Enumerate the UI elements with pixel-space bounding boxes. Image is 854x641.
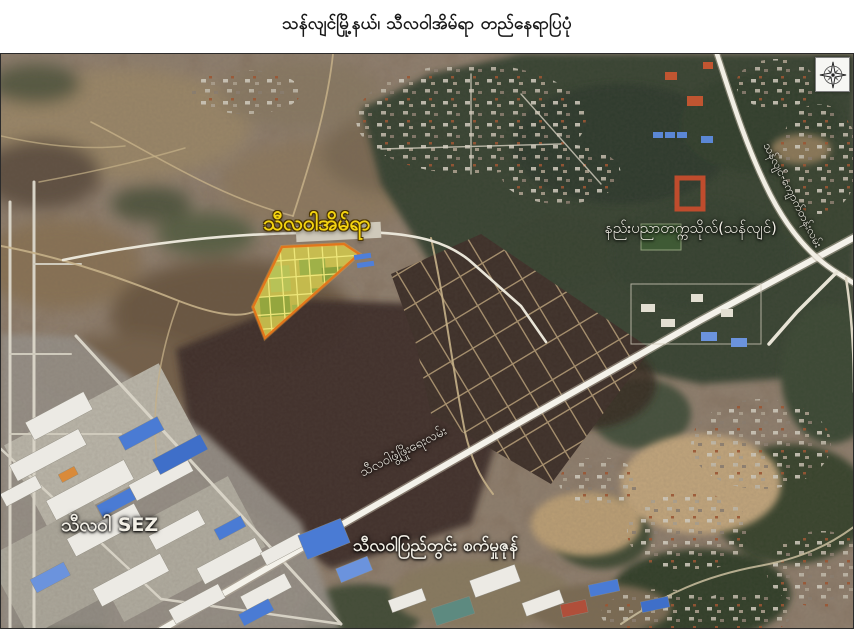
satellite-map: သီလဝါအိမ်ရာ နည်းပညာတက္ကသိုလ်(သန်လျင်) သန… <box>0 53 854 629</box>
label-technological-university: နည်းပညာတက္ကသိုလ်(သန်လျင်) <box>605 219 777 241</box>
compass-rose-icon <box>815 57 850 92</box>
label-thilawa-sez: သီလဝါ SEZ <box>61 513 158 541</box>
map-title: သန်လျင်မြို့နယ်၊ သီလဝါအိမ်ရာ တည်နေရာပြပု… <box>0 13 854 38</box>
figure-page: သန်လျင်မြို့နယ်၊ သီလဝါအိမ်ရာ တည်နေရာပြပု… <box>0 0 854 641</box>
label-domestic-industrial-zone: သီလဝါပြည်တွင်း စက်မှုဇုန် <box>353 535 518 560</box>
label-thilawa-housing: သီလဝါအိမ်ရာ <box>263 210 370 241</box>
